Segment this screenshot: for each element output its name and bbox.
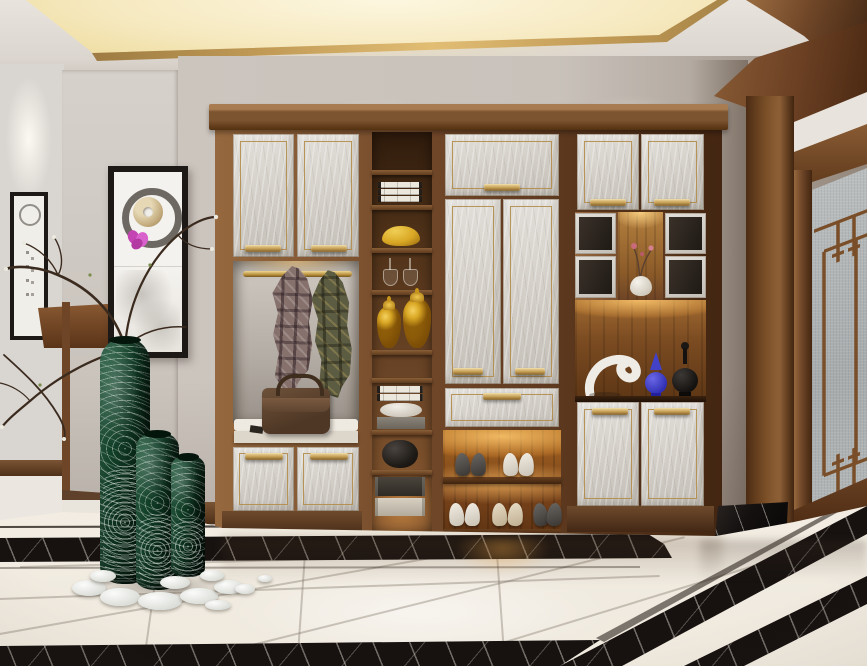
foreground-decor	[0, 0, 867, 666]
pebble	[100, 588, 140, 606]
pebble	[160, 576, 190, 589]
pebble	[138, 592, 182, 610]
pebble	[200, 570, 224, 581]
pebble	[90, 570, 116, 582]
entryway-scene	[0, 0, 867, 666]
pebble	[235, 584, 255, 594]
green-vase-small	[171, 455, 205, 577]
pebble	[205, 600, 231, 610]
pebble	[258, 575, 272, 582]
